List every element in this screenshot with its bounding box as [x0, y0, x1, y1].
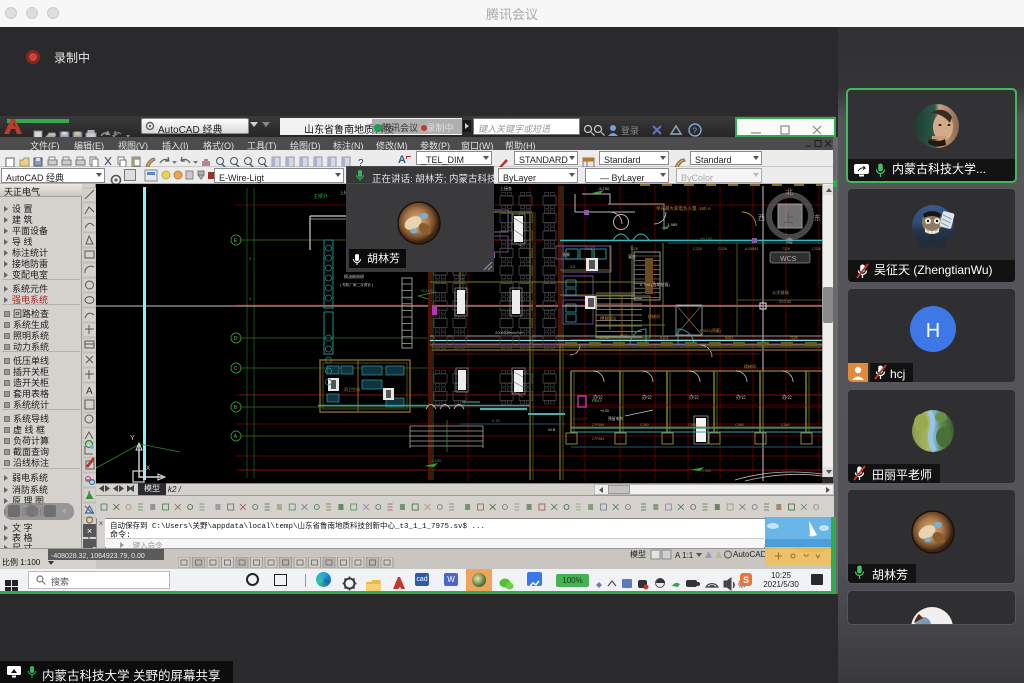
svg-text:A: A	[86, 382, 93, 397]
svg-text:200x200mm²ch: 200x200mm²ch	[495, 330, 523, 336]
svg-text:C340: C340	[640, 423, 649, 428]
svg-text:27F084: 27F084	[592, 437, 604, 442]
svg-text:9: 9	[249, 256, 252, 262]
svg-text:西: 西	[758, 213, 765, 223]
svg-text:主楼外: 主楼外	[313, 193, 328, 200]
svg-text:J-3: J-3	[570, 265, 575, 270]
svg-text:火灾现场: 火灾现场	[772, 289, 789, 296]
svg-text:C: C	[234, 365, 238, 372]
svg-text:-1.500: -1.500	[430, 458, 442, 464]
svg-text:7128: 7128	[782, 247, 790, 252]
svg-text:C346: C346	[688, 423, 697, 428]
svg-text:办公: 办公	[782, 394, 792, 401]
svg-text:A: A	[234, 433, 238, 440]
svg-text:D: D	[234, 335, 238, 342]
svg-text:27F084: 27F084	[592, 423, 604, 428]
svg-text:R643: R643	[592, 398, 602, 404]
svg-text:A-05B64: A-05B64	[745, 246, 758, 251]
svg-text:楼梯间2: 楼梯间2	[600, 315, 616, 322]
svg-text:上: 上	[783, 210, 794, 226]
svg-text:Y: Y	[130, 433, 135, 443]
svg-text:办公: 办公	[736, 394, 746, 401]
svg-text:?: ?	[693, 126, 698, 137]
svg-text:E: E	[234, 237, 238, 244]
svg-text:东: 东	[814, 213, 821, 223]
svg-text:+0.00: +0.00	[600, 409, 609, 414]
svg-text:0.30: 0.30	[492, 418, 501, 424]
svg-text:3: 3	[249, 296, 252, 302]
svg-text:SLLBCCF: SLLBCCF	[570, 416, 589, 422]
svg-text:0.700 (自助检报): 0.700 (自助检报)	[640, 281, 670, 288]
svg-text:( 布防厂家二次资针 ): ( 布防厂家二次资针 )	[340, 282, 373, 288]
svg-text:单光最大家电负人量 .160 A: 单光最大家电负人量 .160 A	[656, 205, 711, 212]
svg-text:办公: 办公	[642, 394, 652, 401]
svg-text:A 1:1: A 1:1	[675, 550, 694, 560]
svg-text:C340: C340	[781, 423, 790, 428]
svg-text:7128: 7128	[585, 247, 593, 252]
svg-text:楼梯间: 楼梯间	[744, 363, 756, 370]
svg-text:+5.100: +5.100	[700, 236, 713, 242]
svg-text:上接各: 上接各	[500, 185, 512, 192]
svg-text:换油继册册: 换油继册册	[344, 273, 364, 280]
svg-text:预留电井: 预留电井	[608, 416, 623, 422]
svg-text:北: 北	[786, 187, 793, 197]
svg-text:B: B	[234, 404, 238, 411]
svg-text:登录: 登录	[621, 124, 639, 137]
svg-text:WCS: WCS	[780, 254, 797, 264]
svg-text:男卫生间: 男卫生间	[344, 386, 360, 393]
svg-text:7128: 7128	[790, 335, 798, 340]
svg-text:W.B: W.B	[548, 427, 556, 433]
svg-text:宴会: 宴会	[628, 253, 636, 260]
svg-text:C966: C966	[735, 423, 744, 428]
svg-text:222.42: 222.42	[779, 299, 792, 305]
svg-text:7128: 7128	[630, 247, 638, 252]
svg-text:南: 南	[786, 236, 793, 246]
svg-text:F7842(预蓄): F7842(预蓄)	[700, 328, 722, 334]
svg-text:C328: C328	[812, 247, 821, 252]
svg-text:A1G1: A1G1	[660, 335, 669, 340]
svg-text:C328: C328	[718, 247, 727, 252]
svg-text:C328: C328	[693, 247, 702, 252]
svg-text:64G1: 64G1	[725, 335, 733, 340]
svg-text:A4G1: A4G1	[600, 335, 609, 340]
svg-text:办公: 办公	[689, 394, 699, 401]
svg-text:X: X	[146, 463, 150, 472]
svg-text:+XX: +XX	[404, 296, 412, 302]
